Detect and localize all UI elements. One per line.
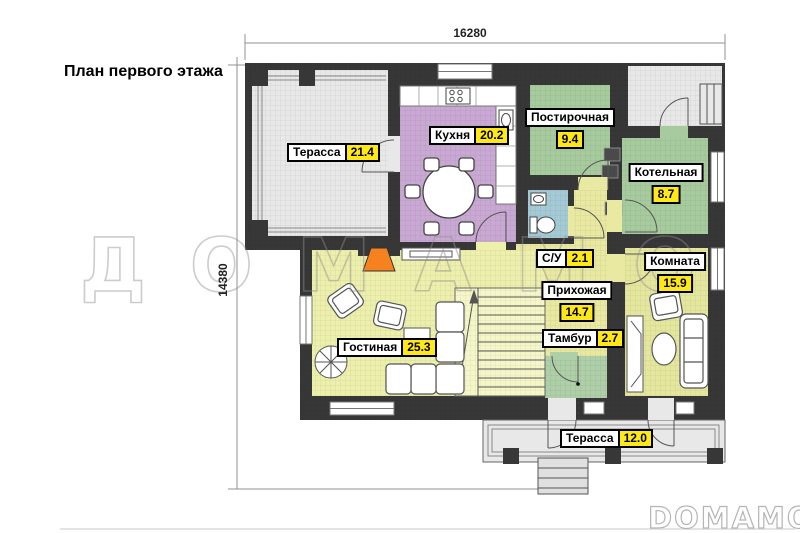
floor-plan-page: ДОМАМО DOMAMO План первого этажа 16280 1… (0, 0, 800, 533)
room-label-hall: Прихожая 14.7 (541, 281, 612, 322)
dimension-width-label: 16280 (410, 26, 530, 40)
wc-sink-icon (531, 193, 546, 205)
stove-icon (446, 88, 470, 104)
dimension-height-label: 14380 (216, 250, 230, 310)
room-label-living: Гостиная 25.3 (337, 338, 437, 357)
room-label-kitchen: Кухня 20.2 (429, 126, 509, 145)
watermark-center: ДОМАМО (80, 223, 740, 309)
watermark-corner: DOMAMO (648, 501, 800, 533)
room-label-terrace-bottom: Терасса 12.0 (560, 429, 653, 448)
room-label-wc: С/У 2.1 (536, 249, 594, 268)
room-label-tambour: Тамбур 2.7 (542, 329, 624, 348)
terrace-steps (538, 458, 588, 494)
wardrobe (627, 316, 643, 392)
room-label-boiler: Котельная 8.7 (629, 163, 704, 204)
page-title: План первого этажа (64, 63, 223, 81)
room-label-laundry: Постирочная 9.4 (525, 108, 615, 149)
room-label-terrace-top: Терасса 21.4 (287, 143, 380, 162)
oval-table (652, 333, 676, 365)
sofa (680, 314, 708, 388)
room-label-bedroom: Комната 15.9 (644, 252, 706, 293)
porch-steps (700, 84, 722, 124)
